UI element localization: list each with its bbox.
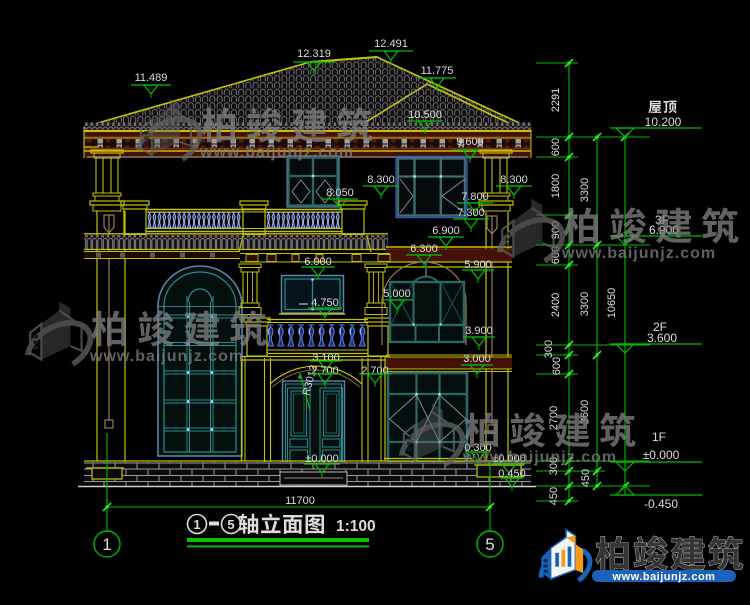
svg-text:1:100: 1:100: [336, 518, 376, 535]
svg-text:8.050: 8.050: [326, 187, 354, 199]
svg-text:10.500: 10.500: [408, 109, 442, 121]
svg-text:7.300: 7.300: [457, 207, 485, 219]
svg-text:2400: 2400: [550, 293, 562, 317]
svg-text:www.baijunjz.com: www.baijunjz.com: [612, 571, 716, 583]
svg-text:2.700: 2.700: [311, 365, 339, 377]
svg-text:2291: 2291: [550, 88, 562, 112]
svg-text:1800: 1800: [550, 174, 562, 198]
svg-text:5: 5: [485, 535, 494, 554]
svg-text:5.900: 5.900: [464, 259, 492, 271]
svg-text:8.300: 8.300: [367, 174, 395, 186]
svg-text:450: 450: [580, 469, 592, 487]
svg-text:±0.000: ±0.000: [643, 448, 680, 462]
svg-text:6.300: 6.300: [410, 243, 438, 255]
svg-text:±0.000: ±0.000: [305, 453, 339, 465]
svg-text:10.200: 10.200: [645, 115, 682, 129]
svg-text:9.600: 9.600: [456, 136, 484, 148]
svg-text:3300: 3300: [579, 292, 591, 316]
svg-text:450: 450: [548, 487, 560, 505]
svg-text:1F: 1F: [652, 430, 666, 444]
svg-text:10650: 10650: [606, 288, 618, 319]
svg-text:www.baijunjz.com: www.baijunjz.com: [561, 245, 716, 262]
svg-text:1: 1: [193, 517, 200, 532]
svg-text:11.489: 11.489: [135, 72, 168, 84]
svg-text:6.900: 6.900: [432, 225, 460, 237]
svg-text:1: 1: [102, 535, 111, 554]
svg-text:3.900: 3.900: [465, 325, 493, 337]
svg-text:11700: 11700: [285, 495, 315, 507]
svg-text:5: 5: [227, 517, 234, 532]
svg-text:5.000: 5.000: [383, 288, 411, 300]
svg-text:300: 300: [543, 340, 555, 358]
svg-text:600: 600: [551, 357, 563, 375]
svg-text:www.baijunjz.com: www.baijunjz.com: [89, 348, 244, 365]
svg-text:12.319: 12.319: [297, 48, 331, 60]
svg-text:8.300: 8.300: [500, 174, 528, 186]
svg-text:7.800: 7.800: [461, 191, 489, 203]
svg-text:6.000: 6.000: [304, 256, 332, 268]
svg-text:3.100: 3.100: [312, 352, 340, 364]
svg-text:4.750: 4.750: [311, 297, 339, 309]
svg-text:3.000: 3.000: [463, 353, 491, 365]
svg-text:11.775: 11.775: [421, 65, 454, 77]
svg-text:www.baijunjz.com: www.baijunjz.com: [462, 449, 617, 466]
svg-text:3300: 3300: [579, 178, 591, 202]
svg-text:2.700: 2.700: [361, 365, 389, 377]
svg-text:12.491: 12.491: [374, 38, 408, 50]
svg-text:600: 600: [550, 138, 562, 156]
svg-text:www.baijunjz.com: www.baijunjz.com: [199, 144, 354, 161]
svg-text:-0.450: -0.450: [644, 497, 678, 511]
svg-text:3.600: 3.600: [647, 331, 677, 345]
